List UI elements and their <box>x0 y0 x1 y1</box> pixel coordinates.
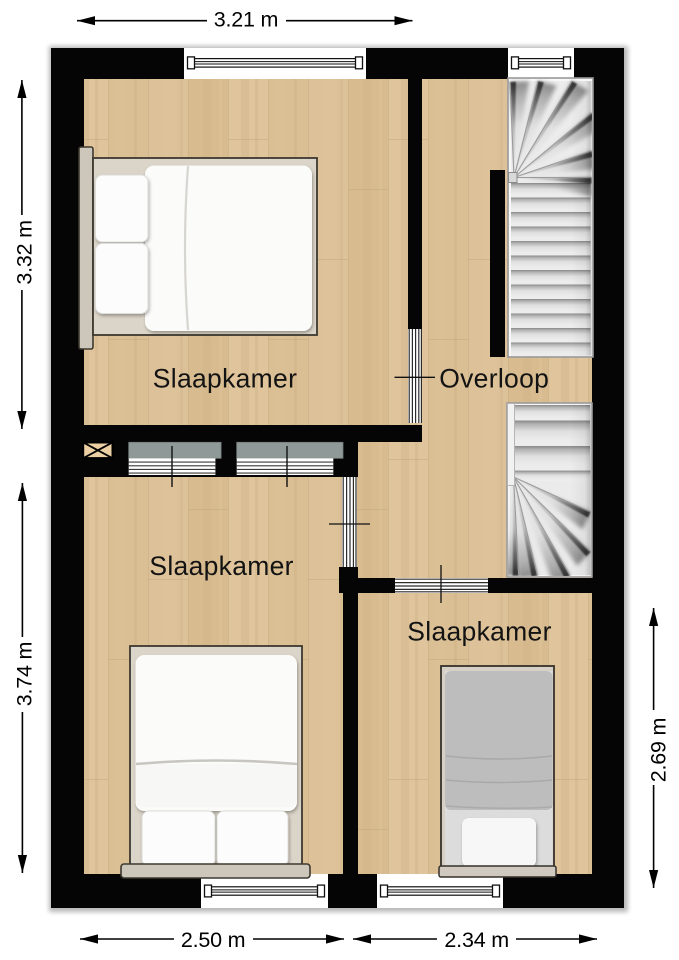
svg-text:2.34 m: 2.34 m <box>444 928 509 952</box>
svg-text:2.50 m: 2.50 m <box>181 928 246 952</box>
svg-text:Overloop: Overloop <box>439 364 549 394</box>
svg-text:3.21 m: 3.21 m <box>214 7 279 31</box>
svg-text:Slaapkamer: Slaapkamer <box>153 364 297 394</box>
svg-text:2.69 m: 2.69 m <box>646 718 670 783</box>
svg-text:3.32 m: 3.32 m <box>13 220 37 285</box>
svg-text:Slaapkamer: Slaapkamer <box>149 551 293 581</box>
svg-text:3.74 m: 3.74 m <box>13 642 37 707</box>
svg-text:Slaapkamer: Slaapkamer <box>407 617 551 647</box>
